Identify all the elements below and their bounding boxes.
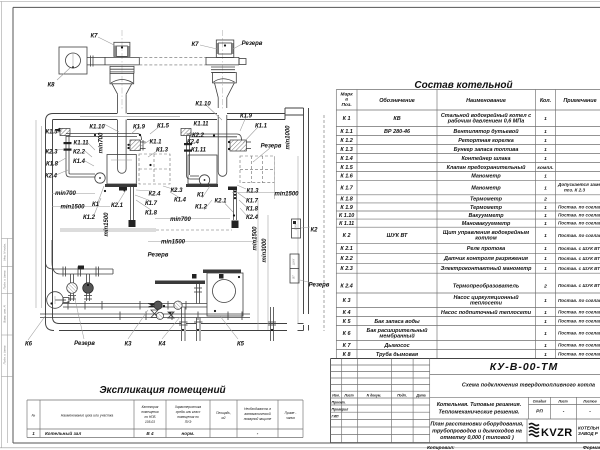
svg-text:поз. К 2.3: поз. К 2.3	[564, 187, 585, 192]
svg-text:К1.5: К1.5	[157, 124, 170, 130]
svg-text:Подп.: Подп.	[397, 394, 407, 398]
svg-text:Резерв: Резерв	[261, 144, 282, 150]
svg-text:К7: К7	[191, 42, 199, 48]
svg-text:К1.3: К1.3	[156, 148, 169, 154]
svg-text:К 8: К 8	[343, 352, 352, 358]
svg-text:К1.9: К1.9	[133, 125, 146, 131]
svg-text:Лист: Лист	[343, 394, 353, 398]
svg-text:Постав. по согласов: Постав. по согласов	[558, 331, 600, 336]
svg-text:1: 1	[544, 352, 547, 358]
svg-text:1: 1	[544, 266, 547, 272]
svg-text:1: 1	[544, 319, 547, 325]
svg-text:КОТЕЛЬН: КОТЕЛЬН	[578, 426, 600, 431]
svg-text:К1.5: К1.5	[45, 130, 58, 136]
svg-text:К 2: К 2	[343, 233, 351, 239]
svg-text:Постав. с ШУК ВТ: Постав. с ШУК ВТ	[558, 256, 600, 261]
svg-text:К1: К1	[92, 202, 100, 208]
svg-text:Необходимость в: Необходимость в	[244, 407, 271, 411]
svg-text:Резерв: Резерв	[242, 41, 263, 47]
svg-text:Термопреобразователь: Термопреобразователь	[453, 282, 519, 289]
svg-text:Схема подключения твердотоплив: Схема подключения твердотопливного котла	[462, 382, 595, 388]
svg-text:рабочим давлением 0,6 МПа: рабочим давлением 0,6 МПа	[447, 118, 525, 125]
svg-text:Формат: Формат	[583, 445, 600, 450]
svg-text:К2.2: К2.2	[192, 133, 205, 139]
svg-text:К 7: К 7	[343, 343, 352, 349]
svg-text:помещения по: помещения по	[177, 415, 199, 419]
svg-text:К1.11: К1.11	[74, 141, 90, 147]
svg-text:1: 1	[544, 129, 547, 135]
svg-text:К3: К3	[124, 342, 132, 348]
svg-text:Категория: Категория	[142, 405, 159, 409]
svg-text:К 1.2: К 1.2	[340, 138, 352, 144]
svg-text:1: 1	[544, 221, 547, 227]
svg-text:Резерв: Резерв	[148, 253, 169, 259]
svg-text:Манометр: Манометр	[471, 185, 501, 191]
svg-text:Постав. с ШУК ВТ: Постав. с ШУК ВТ	[558, 283, 600, 288]
svg-text:Термометр: Термометр	[470, 205, 503, 211]
svg-text:Наименование цеха или участка: Наименование цеха или участка	[61, 414, 114, 418]
svg-text:К2: К2	[310, 228, 318, 234]
svg-text:К6: К6	[25, 342, 33, 348]
svg-text:Постав. с ШУК ВТ: Постав. с ШУК ВТ	[558, 246, 600, 251]
svg-text:Резерв: Резерв	[309, 283, 330, 289]
svg-text:К 1.5: К 1.5	[340, 165, 353, 171]
svg-text:min1500: min1500	[104, 212, 110, 237]
svg-text:1: 1	[544, 174, 547, 180]
svg-text:Инв. N подл.: Инв. N подл.	[3, 243, 7, 261]
svg-text:К2.2: К2.2	[73, 150, 86, 156]
svg-text:Тепломеханические решения.: Тепломеханические решения.	[438, 410, 520, 416]
svg-text:К1.2: К1.2	[195, 205, 208, 211]
svg-text:Взам. инв. N: Взам. инв. N	[3, 304, 7, 322]
svg-text:К 1.9: К 1.9	[340, 205, 352, 211]
svg-text:Контейнер шлака: Контейнер шлака	[461, 155, 510, 162]
svg-text:К1.8: К1.8	[46, 162, 59, 168]
svg-text:Постав. по согласов: Постав. по согласов	[558, 343, 600, 348]
svg-text:К2.3: К2.3	[45, 150, 58, 156]
svg-text:Бак запаса воды: Бак запаса воды	[374, 319, 420, 325]
svg-text:помещения: помещения	[141, 410, 158, 414]
svg-text:а: а	[345, 98, 348, 103]
svg-text:пожарной защите: пожарной защите	[244, 417, 272, 421]
svg-text:К2.1: К2.1	[214, 199, 227, 205]
svg-text:автоматической: автоматической	[244, 412, 270, 416]
svg-text:К2.4: К2.4	[246, 215, 259, 221]
svg-text:Подп. и дата: Подп. и дата	[3, 345, 7, 364]
svg-text:Дымосос: Дымосос	[383, 343, 409, 349]
svg-text:В 4: В 4	[146, 431, 154, 436]
svg-text:Проверил: Проверил	[332, 408, 350, 412]
svg-text:трубопроводов и дымоходов на: трубопроводов и дымоходов на	[432, 427, 522, 434]
svg-text:м2: м2	[222, 416, 226, 420]
svg-text:Примечание: Примечание	[563, 98, 596, 104]
svg-text:min1000: min1000	[286, 125, 292, 150]
svg-text:К1.10: К1.10	[195, 102, 211, 108]
svg-text:К 1.8: К 1.8	[340, 197, 353, 203]
svg-text:1: 1	[544, 205, 547, 211]
svg-text:К1.1: К1.1	[255, 124, 268, 130]
svg-text:2: 2	[543, 197, 547, 203]
svg-text:К1.9: К1.9	[240, 114, 253, 120]
svg-text:1: 1	[544, 310, 547, 316]
svg-text:чания: чания	[286, 416, 295, 420]
svg-text:Дата: Дата	[415, 394, 425, 398]
svg-text:К1.11: К1.11	[191, 148, 207, 154]
svg-text:ЗАВОД Р: ЗАВОД Р	[578, 431, 598, 436]
svg-text:1: 1	[544, 233, 547, 239]
svg-text:1: 1	[544, 343, 547, 349]
svg-text:К 1.3: К 1.3	[340, 147, 352, 153]
svg-text:Обозначение: Обозначение	[379, 97, 415, 104]
svg-text:Листов: Листов	[582, 400, 596, 404]
svg-text:по НПБ: по НПБ	[144, 415, 155, 419]
svg-text:Характеристика: Характеристика	[174, 405, 201, 409]
svg-text:К4: К4	[158, 342, 166, 348]
svg-text:Ретортная горелка: Ретортная горелка	[458, 138, 514, 144]
svg-text:1: 1	[32, 431, 35, 436]
svg-text:Труба дымовая: Труба дымовая	[376, 351, 419, 358]
svg-text:К1.8: К1.8	[145, 211, 158, 217]
svg-text:К 5: К 5	[343, 319, 352, 325]
svg-text:Постав. с ШУК ВТ: Постав. с ШУК ВТ	[558, 266, 600, 271]
svg-text:2: 2	[543, 283, 547, 289]
svg-text:Копировал:: Копировал:	[427, 445, 455, 450]
svg-text:норм.: норм.	[181, 431, 194, 436]
svg-text:К 1.6: К 1.6	[340, 174, 353, 180]
svg-text:Лист: Лист	[557, 400, 567, 404]
svg-text:ПУЭ: ПУЭ	[185, 420, 192, 424]
svg-text:1: 1	[544, 256, 547, 262]
svg-text:1: 1	[544, 246, 547, 252]
svg-text:К2.1: К2.1	[111, 203, 124, 209]
svg-text:Постав. по согласов: Постав. по согласов	[558, 221, 600, 226]
svg-text:КУ-В-00-ТМ: КУ-В-00-ТМ	[490, 361, 559, 373]
svg-text:Вентилятор дутьевой: Вентилятор дутьевой	[453, 128, 519, 135]
svg-text:Котельный зал: Котельный зал	[45, 430, 81, 436]
svg-text:№: №	[32, 414, 36, 418]
svg-text:К 2.2: К 2.2	[340, 256, 352, 262]
svg-text:Постав. по согласов: Постав. по согласов	[558, 298, 600, 303]
svg-text:К1.8: К1.8	[246, 207, 259, 213]
svg-text:min700: min700	[170, 217, 191, 223]
svg-text:К 3: К 3	[343, 298, 351, 304]
svg-text:1: 1	[544, 331, 547, 337]
svg-text:Изм.: Изм.	[332, 394, 340, 398]
svg-text:min700: min700	[98, 132, 104, 153]
svg-text:теплосети: теплосети	[470, 301, 503, 307]
svg-text:К 6: К 6	[343, 331, 352, 337]
svg-text:Постав. по согласов: Постав. по согласов	[558, 310, 600, 315]
svg-text:К2.3: К2.3	[170, 188, 183, 194]
svg-text:К1.2: К1.2	[83, 215, 96, 221]
svg-text:К 1.1: К 1.1	[340, 129, 352, 135]
svg-text:Котельная. Типовые решения.: Котельная. Типовые решения.	[437, 402, 522, 408]
svg-text:Датчик контроля разряжения: Датчик контроля разряжения	[443, 256, 529, 262]
svg-text:KVZR: KVZR	[541, 427, 573, 439]
svg-text:среды или класс: среды или класс	[176, 410, 201, 414]
svg-text:К 2.3: К 2.3	[340, 266, 352, 272]
svg-text:105-03: 105-03	[145, 420, 155, 424]
svg-text:1: 1	[544, 213, 547, 219]
svg-text:N докум.: N докум.	[367, 394, 382, 398]
svg-text:1: 1	[544, 116, 547, 122]
svg-text:Постав. по согласов: Постав. по согласов	[558, 352, 600, 357]
svg-text:Вакуумметр: Вакуумметр	[468, 213, 504, 219]
svg-text:1: 1	[544, 298, 547, 304]
svg-text:1: 1	[544, 138, 547, 144]
svg-text:отметку 0,000 ( типовой ): отметку 0,000 ( типовой )	[440, 434, 514, 441]
svg-text:Проект.: Проект.	[332, 401, 346, 405]
svg-text:Бункер запаса топлива: Бункер запаса топлива	[454, 147, 519, 153]
svg-text:Допускается замена: Допускается замена	[557, 182, 600, 187]
svg-text:min700: min700	[55, 191, 76, 197]
svg-text:1: 1	[544, 156, 547, 162]
svg-text:Постав. по согласов: Постав. по согласов	[558, 204, 600, 209]
svg-text:К7: К7	[90, 34, 98, 40]
svg-text:К5: К5	[237, 342, 245, 348]
svg-text:ШУК ВТ: ШУК ВТ	[387, 233, 408, 239]
svg-text:min1500: min1500	[161, 240, 186, 246]
svg-text:min1500: min1500	[253, 226, 259, 251]
svg-text:К1.1: К1.1	[149, 140, 162, 146]
svg-text:Постав. по согласов: Постав. по согласов	[558, 319, 600, 324]
svg-text:План расстановки оборудования,: План расстановки оборудования,	[430, 421, 524, 428]
svg-text:К 2.1: К 2.1	[340, 246, 352, 252]
svg-text:Резерв: Резерв	[74, 341, 95, 347]
svg-text:Клапан предохранительный: Клапан предохранительный	[447, 164, 527, 171]
svg-text:Манометр: Манометр	[471, 174, 501, 180]
svg-text:min1500: min1500	[274, 192, 299, 198]
svg-text:1: 1	[544, 185, 547, 191]
svg-text:Стадия: Стадия	[533, 400, 547, 404]
svg-text:К 4: К 4	[343, 310, 351, 316]
svg-text:Электроконтактный манометр: Электроконтактный манометр	[441, 265, 533, 272]
svg-text:К 1.10: К 1.10	[339, 213, 354, 219]
svg-text:Поз.: Поз.	[342, 102, 352, 108]
svg-text:К2.4: К2.4	[187, 140, 200, 146]
svg-text:К 1.4: К 1.4	[340, 156, 352, 162]
svg-text:min1500: min1500	[60, 205, 85, 211]
svg-text:1: 1	[544, 147, 547, 153]
svg-text:Насос подпиточный теплосети: Насос подпиточный теплосети	[441, 309, 532, 316]
svg-text:ШУК: ШУК	[294, 224, 298, 231]
svg-text:Реле протока: Реле протока	[467, 246, 505, 252]
svg-text:К1.7: К1.7	[246, 199, 259, 205]
svg-text:ГИП: ГИП	[332, 415, 340, 419]
svg-text:мембранный: мембранный	[379, 332, 415, 339]
svg-text:К 1: К 1	[343, 116, 351, 122]
svg-text:К1: К1	[197, 193, 205, 199]
svg-text:Мановакуумметр: Мановакуумметр	[462, 221, 511, 227]
svg-text:Постав. по согласов: Постав. по согласов	[558, 233, 600, 238]
svg-text:ШУК: ШУК	[292, 259, 296, 266]
svg-text:компл.: компл.	[537, 166, 553, 171]
svg-text:К1.4: К1.4	[174, 198, 187, 204]
svg-text:К2.4: К2.4	[45, 174, 58, 180]
svg-text:К1.4: К1.4	[73, 159, 86, 165]
svg-text:ВР 280-46: ВР 280-46	[384, 129, 411, 135]
svg-text:Термометр: Термометр	[470, 197, 503, 203]
svg-text:К1.11: К1.11	[194, 122, 210, 128]
svg-text:К2.4: К2.4	[148, 192, 161, 198]
svg-text:Приме -: Приме -	[285, 411, 297, 415]
svg-text:Подп. и дата: Подп. и дата	[3, 270, 7, 289]
svg-text:min3000: min3000	[262, 238, 268, 263]
svg-text:Экспликация помещений: Экспликация помещений	[99, 385, 225, 396]
svg-text:К 1.11: К 1.11	[339, 221, 354, 227]
svg-text:Постав. по согласов: Постав. по согласов	[558, 213, 600, 218]
svg-text:РП: РП	[536, 409, 543, 415]
svg-text:К1.7: К1.7	[145, 201, 158, 207]
svg-text:Кол.: Кол.	[540, 98, 552, 104]
svg-text:К8: К8	[47, 83, 55, 89]
svg-text:котлом: котлом	[475, 236, 497, 242]
svg-text:К 1.7: К 1.7	[340, 185, 353, 191]
svg-text:Наименование: Наименование	[466, 98, 506, 104]
svg-text:Площадь,: Площадь,	[216, 411, 231, 415]
svg-text:К 2.4: К 2.4	[340, 283, 352, 289]
svg-text:К1.10: К1.10	[89, 125, 105, 131]
svg-text:К1.3: К1.3	[246, 189, 259, 195]
svg-text:КВ: КВ	[393, 116, 400, 122]
